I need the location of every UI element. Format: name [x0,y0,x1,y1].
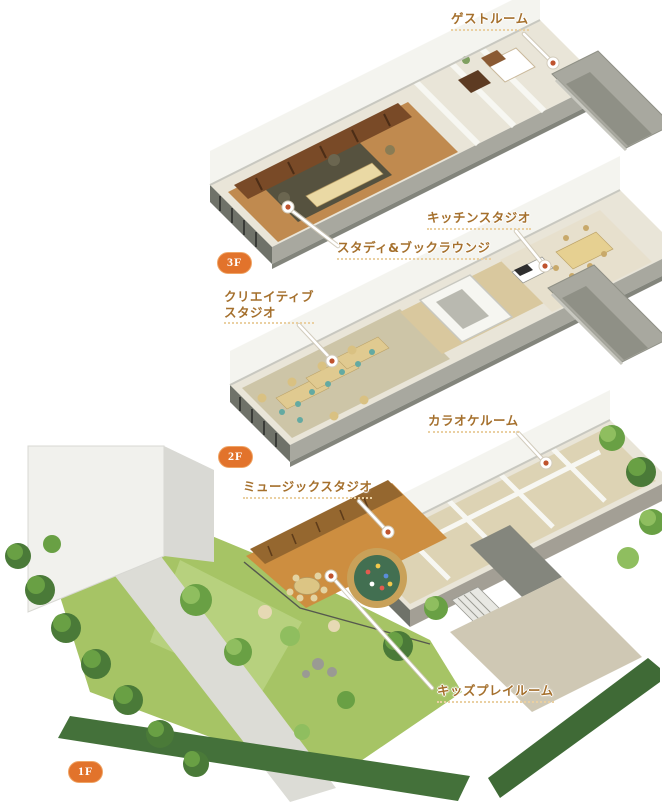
leader-line-karaoke-room [518,433,543,460]
marker-dot-kids-play-room [328,573,333,578]
leader-line-study-book-lounge [291,210,338,246]
floor-guide-illustration: 3F 2F 1F ゲストルームスタディ&ブックラウンジキッチンスタジオクリエイテ… [0,0,662,802]
marker-dot-guest-room [550,60,555,65]
leader-line-kids-play-room [334,579,432,688]
leader-line-creative-studio [299,325,330,358]
marker-dot-music-studio [385,529,390,534]
leader-line-guest-room [524,34,550,60]
marker-dot-karaoke-room [543,460,548,465]
leader-line-music-studio [359,501,385,529]
leader-line-kitchen-studio [516,231,542,263]
marker-dot-creative-studio [329,358,334,363]
marker-dot-study-book-lounge [285,204,290,209]
marker-dot-kitchen-studio [542,263,547,268]
callout-overlay [0,0,662,802]
